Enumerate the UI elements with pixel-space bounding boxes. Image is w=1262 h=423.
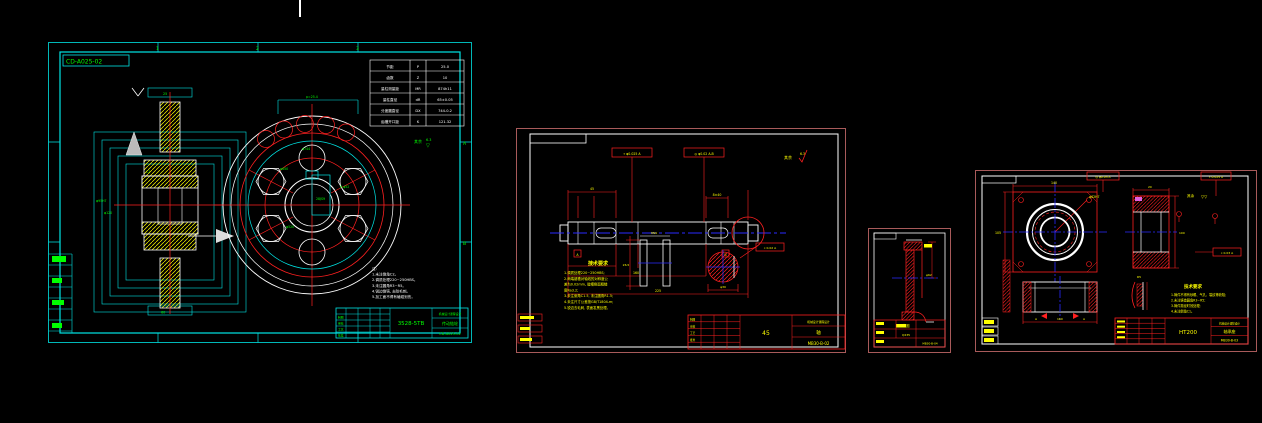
- dim-label: 60: [161, 311, 165, 315]
- table-cell: P: [417, 65, 420, 69]
- dim-label: 6-φ52: [340, 185, 349, 189]
- dim-label: φ120: [104, 211, 112, 215]
- dim-label: φ650: [280, 167, 288, 171]
- sheet2-notes: 技术要求 1.调质处理220~250HBS; 2.两端键槽对轴线的对称度公 差为…: [564, 260, 613, 310]
- section-arrow-icon: [216, 229, 234, 243]
- table-cell: 量柱测量距: [381, 86, 399, 91]
- material-label: HT200: [1179, 330, 1197, 336]
- note-line: 2.调质处理220~250HBS。: [372, 277, 418, 282]
- note-line: 1.铸件不得有砂眼、气孔、裂纹等缺陷;: [1171, 292, 1226, 297]
- roughness-rest-label: 其余: [784, 154, 792, 160]
- note-line: 4.未注倒角C1。: [1171, 309, 1194, 314]
- sheet-housing: φ62H7 140 105 100 20 ◎ φ0.03 A ⌖ 0.025 A…: [975, 170, 1257, 352]
- front-dim-labels: φ62H7 140 105: [995, 181, 1100, 235]
- sheet1-zone-labels: 1 2 3 A B: [156, 46, 467, 247]
- table-cell: DX: [415, 109, 421, 113]
- table-cell: 齿数: [386, 75, 394, 80]
- sheet2-registry-boxes: [518, 314, 542, 343]
- note-line: 度Ra3.2;: [564, 287, 578, 292]
- sheet-ring: φ62 挡圈 Q235 MB30-B-04: [868, 228, 951, 353]
- sheet1-notes: 注: 1.未注倒角C2。 2.调质处理220~250HBS。 3.未注圆角R3~…: [372, 266, 418, 299]
- dim-label: 8×40: [713, 193, 722, 197]
- title-cell: 工艺: [338, 328, 344, 332]
- note-line: 4.锐边倒钝, 去除毛刺。: [372, 288, 410, 293]
- company-name: 机械设计课程设计: [1219, 322, 1240, 326]
- table-cell: 65±0.05: [437, 98, 453, 102]
- sheet3-title-block: 挡圈 Q235 MB30-B-04: [874, 320, 945, 347]
- note-line: 4.未注尺寸公差按GB/T1804-m;: [564, 299, 613, 304]
- title-cell: 批准: [690, 338, 696, 342]
- dim-label: 160: [1057, 317, 1063, 321]
- shaft-cross-section: φ30 ⌖ 0.02 A: [706, 243, 784, 292]
- tolerance-frame-label: ⌖ φ0.025 A: [623, 152, 641, 156]
- note-line: 5.加工面不得有磕碰划伤。: [372, 294, 415, 299]
- dim-label: 8N9: [651, 231, 657, 235]
- table-cell: 25.0: [441, 65, 450, 69]
- dim-label: φ62: [926, 273, 932, 277]
- zone-label: 2: [256, 46, 259, 52]
- dim-label: 140: [1051, 181, 1057, 185]
- drawing-number: MB30-B-03: [1221, 339, 1238, 343]
- title-cell: 制图: [690, 318, 696, 322]
- note-line: 注:: [372, 266, 377, 271]
- note-line: 5.锐边去毛刺, 表面发黑处理。: [564, 305, 610, 310]
- zone-label: 1: [156, 46, 159, 52]
- dim-label: φ744: [302, 147, 310, 151]
- material-label: 45: [762, 330, 770, 337]
- notes-title: 技术要求: [1184, 283, 1202, 290]
- section-cone-icon: [126, 132, 142, 155]
- table-cell: 量柱直径: [383, 97, 398, 102]
- section-arrow-icon: [1041, 313, 1047, 319]
- housing-side-section: 100 20: [1125, 185, 1185, 268]
- company-name: 机械设计课程设计: [807, 320, 830, 324]
- drawing-number: MB30-B-04: [922, 342, 938, 346]
- title-cell: 工艺: [690, 331, 696, 335]
- keyway-section-detail: 8N9 26.5: [623, 231, 672, 290]
- section-label: A: [1083, 317, 1086, 321]
- dim-label: 100: [1179, 231, 1185, 235]
- company-name: 机械设计课程设计: [439, 312, 462, 316]
- note-line: 3.未注倒角C1.5, 未注圆角R1.5;: [564, 293, 613, 298]
- sheet-shaft: 45 8×40 45 160 225 ⌖ φ0.025 A ◎ φ0.02 A-…: [516, 128, 846, 353]
- title-cell: 审核: [690, 324, 696, 328]
- table-cell: 874h11: [438, 87, 452, 91]
- model-number: 3528-5TB: [398, 321, 425, 327]
- section-arrow-icon: [1073, 313, 1079, 319]
- corner-drawing-no: CD-A025-02: [66, 59, 102, 66]
- dim-label: φ62H7: [1089, 195, 1100, 199]
- dim-label: 160: [633, 271, 639, 275]
- table-cell: 744-0.2: [438, 109, 452, 113]
- title-cell: 制图: [338, 316, 344, 320]
- roughness-triangle-icon: ▽▽: [1201, 194, 1208, 199]
- note-line: 3.未注圆角R3~R5。: [372, 283, 406, 288]
- section-label: A: [1035, 317, 1038, 321]
- part-name: 轴承座: [1224, 328, 1236, 334]
- sheet2-title-block: 45 机械设计课程设计 轴 MB30-B-02 制图 审核 工艺 批准: [688, 315, 845, 349]
- sheet4-notes: 技术要求 1.铸件不得有砂眼、气孔、裂纹等缺陷; 2.未注铸造圆角R3~R5; …: [1171, 283, 1226, 314]
- table-cell: 节距: [386, 64, 394, 69]
- table-cell: MR: [415, 87, 421, 91]
- material-label: Q235: [902, 333, 910, 337]
- table-cell: 分度圆直径: [381, 108, 399, 113]
- part-name: 传动链轮: [442, 320, 458, 326]
- tolerance-frame-label: ⌖ 0.03 A: [1221, 251, 1234, 255]
- tolerance-frame-label: ◎ φ0.02 A-B: [694, 152, 713, 156]
- table-cell: 121.32: [439, 120, 452, 124]
- roughness-value: 6.3: [800, 152, 805, 156]
- highlight-mark: [1135, 197, 1142, 201]
- table-cell: 齿槽开口距: [381, 119, 399, 124]
- dim-label: φ30: [720, 285, 726, 289]
- notes-title: 技术要求: [588, 260, 609, 267]
- part-name: 轴: [816, 329, 821, 336]
- title-cell: 审核: [338, 322, 344, 326]
- sprocket-parameter-table: 节距 P 25.0 齿数 Z 10 量柱测量距 MR 874h11 量柱直径 d…: [370, 60, 464, 126]
- note-line: 3.铸件需经时效处理;: [1171, 303, 1201, 308]
- title-cell: 批准: [338, 334, 344, 338]
- dim-label: 105: [995, 231, 1001, 235]
- housing-detail-view: R5: [1132, 275, 1147, 310]
- roughness-icon: 其余 6.3: [784, 150, 807, 162]
- note-line: 2.两端键槽对轴线的对称度公: [564, 276, 609, 281]
- sheet1-corner-label: CD-A025-02: [63, 55, 129, 66]
- zone-label: B: [463, 241, 466, 247]
- datum-label: A: [576, 253, 579, 257]
- dim-label: 26.5: [623, 263, 630, 267]
- dim-label: φ520: [286, 225, 294, 229]
- dim-label: p=25.4: [306, 95, 318, 99]
- tolerance-frame-label: ⌖ 0.025 A: [1209, 175, 1224, 179]
- dim-label: φ95H7: [96, 199, 107, 203]
- part-name: 挡圈: [903, 323, 911, 328]
- note-line: 2.未注铸造圆角R3~R5;: [1171, 298, 1205, 303]
- dim-label: R5: [1137, 275, 1141, 279]
- dim-label: 20: [1148, 185, 1152, 189]
- cad-workspace: 1 2 3 A B CD-A025-02 节距 P 25.0 齿数 Z 10 量…: [0, 0, 1262, 423]
- note-line: 1.未注倒角C2。: [372, 272, 398, 277]
- drawing-number: CD-A025-02: [439, 332, 461, 336]
- roughness-rest-label: 其余: [414, 138, 422, 144]
- dim-label: 25: [163, 92, 167, 96]
- sheet4-title-block: HT200 机械设计课程设计 轴承座 MB30-B-03: [1115, 318, 1248, 344]
- sheet4-registry-boxes: [982, 318, 998, 344]
- datum-symbol-icon: [1213, 214, 1218, 219]
- table-cell: K: [417, 120, 420, 124]
- sheet2-border: [517, 129, 846, 353]
- tolerance-frame-label: ⌖ 0.02 A: [764, 246, 777, 250]
- tolerance-frame-label: ◎ φ0.03 A: [1095, 175, 1111, 179]
- drawing-number: MB30-B-02: [808, 341, 830, 346]
- note-line: 差为0.02mm, 键槽侧面粗糙: [564, 282, 608, 287]
- dim-label: 225: [655, 289, 661, 293]
- roughness-icon: 其余 6.3 ▽: [414, 138, 431, 149]
- text-cursor: [299, 0, 301, 17]
- datum-symbol-icon: [1177, 212, 1182, 217]
- roughness-value: 6.3: [426, 138, 431, 142]
- note-line: 1.调质处理220~250HBS;: [564, 270, 605, 275]
- dim-label: 45: [590, 187, 594, 191]
- housing-bottom-view: 160 A A: [1023, 276, 1097, 324]
- ring-section-view: φ62: [892, 240, 938, 328]
- dim-label: 28JS9: [316, 197, 325, 201]
- shaft-view: 45 8×40 45 160 225 ⌖ φ0.025 A ◎ φ0.02 A-…: [550, 148, 786, 298]
- roughness-rest-label: 其余: [1187, 193, 1195, 198]
- table-cell: 10: [443, 76, 448, 80]
- roughness-triangle-icon: ▽: [426, 143, 430, 149]
- table-cell: dR: [416, 98, 421, 102]
- part-outline: [132, 88, 216, 308]
- table-cell: Z: [417, 76, 420, 80]
- zone-label: 3: [356, 46, 359, 52]
- sheet4-tolerances: ◎ φ0.03 A ⌖ 0.025 A 其余 ▽▽ ⌖ 0.03 A: [1087, 172, 1241, 256]
- sheet-sprocket: 1 2 3 A B CD-A025-02 节距 P 25.0 齿数 Z 10 量…: [48, 42, 472, 343]
